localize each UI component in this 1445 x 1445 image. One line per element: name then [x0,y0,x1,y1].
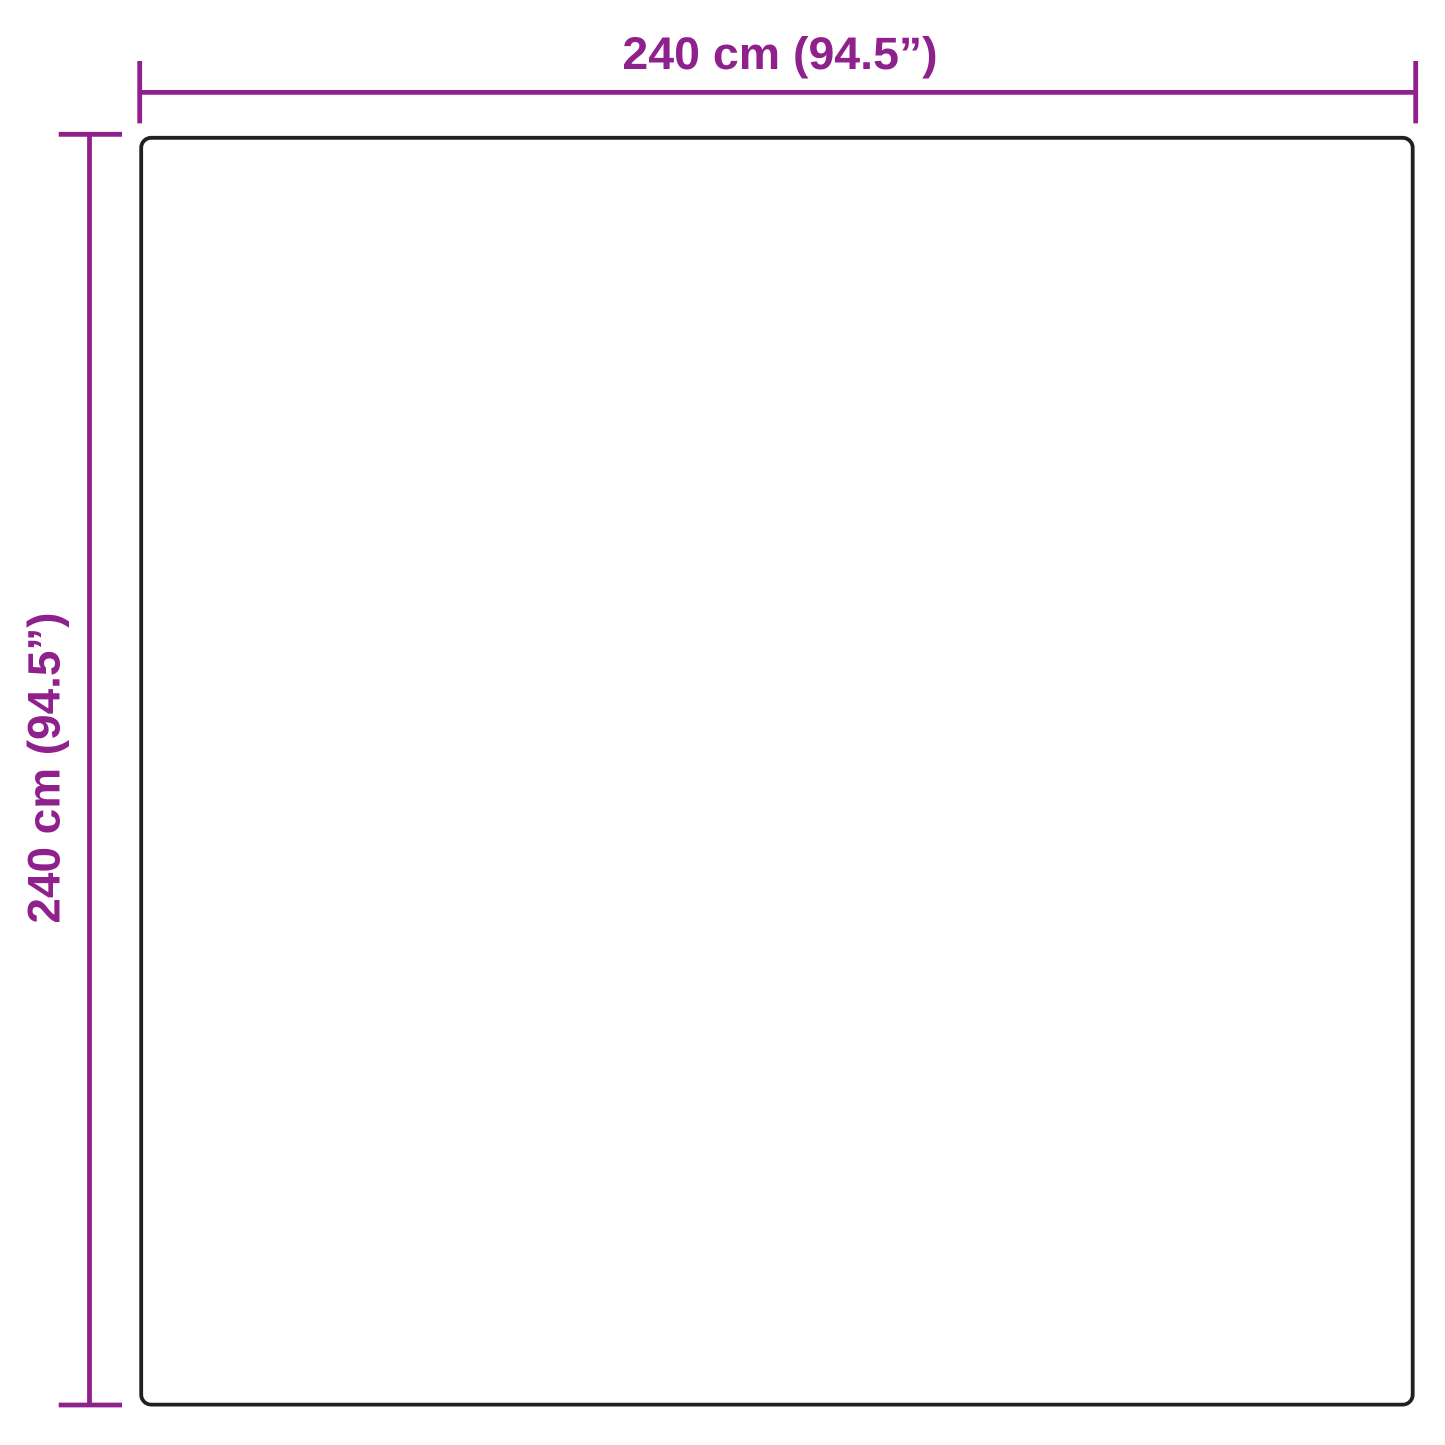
svg-text:240 cm (94.5”): 240 cm (94.5”) [19,612,69,923]
svg-text:240 cm (94.5”): 240 cm (94.5”) [622,29,937,79]
